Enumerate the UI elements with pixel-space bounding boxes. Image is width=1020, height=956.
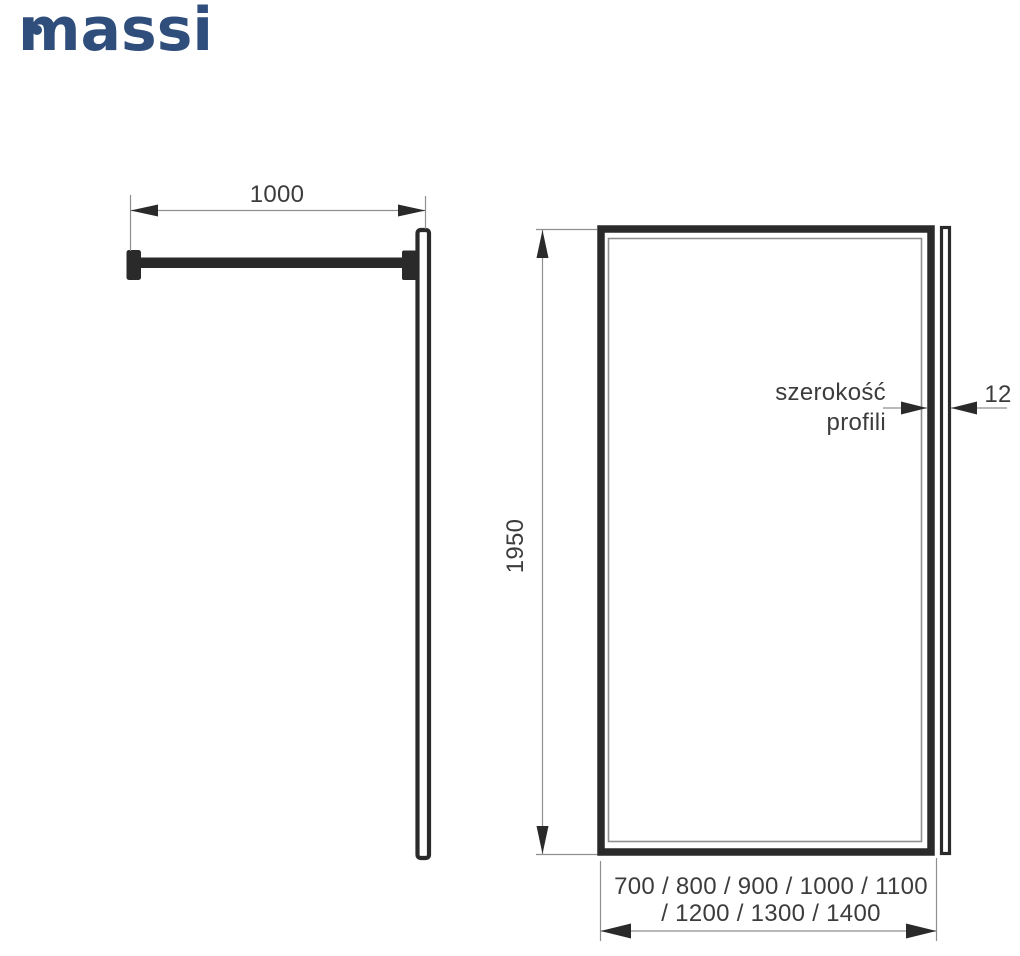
arm-connector — [402, 251, 417, 281]
arrow-up-icon — [537, 230, 549, 258]
available-widths-line2: / 1200 / 1300 / 1400 — [661, 900, 881, 927]
arrow-left-icon — [131, 205, 159, 217]
side-view-drawing — [127, 230, 430, 858]
arrow-right-icon — [398, 205, 426, 217]
height-dimension: 1950 — [502, 230, 598, 855]
arrow-down-icon — [537, 826, 549, 854]
brand-logo-dot-icon — [32, 25, 42, 35]
arm-length-value: 1000 — [250, 181, 305, 208]
brand-logo: massi — [18, 0, 213, 65]
profile-width-value: 12 — [984, 381, 1011, 408]
brand-logo-text: massi — [18, 0, 213, 65]
profile-caption-line1: szerokość — [775, 379, 886, 406]
arm-length-dimension: 1000 — [131, 181, 426, 251]
wall-profile-bar — [942, 228, 950, 854]
width-range-dimension: 700 / 800 / 900 / 1000 / 1100 / 1200 / 1… — [601, 858, 937, 941]
glass-panel-side — [418, 230, 430, 858]
arrow-left-icon — [601, 924, 632, 939]
shower-panel-technical-drawing: massi 1000 — [0, 0, 1020, 956]
panel-frame — [601, 229, 931, 852]
front-view-drawing — [601, 228, 950, 854]
support-arm — [139, 258, 405, 269]
arrow-right-icon — [906, 924, 937, 939]
available-widths-line1: 700 / 800 / 900 / 1000 / 1100 — [614, 873, 928, 900]
profile-caption-line2: profili — [827, 409, 886, 436]
drawing-svg: massi 1000 — [0, 0, 1020, 956]
height-value: 1950 — [502, 519, 529, 574]
wall-bracket — [127, 250, 142, 280]
arrow-left-icon — [951, 402, 977, 415]
